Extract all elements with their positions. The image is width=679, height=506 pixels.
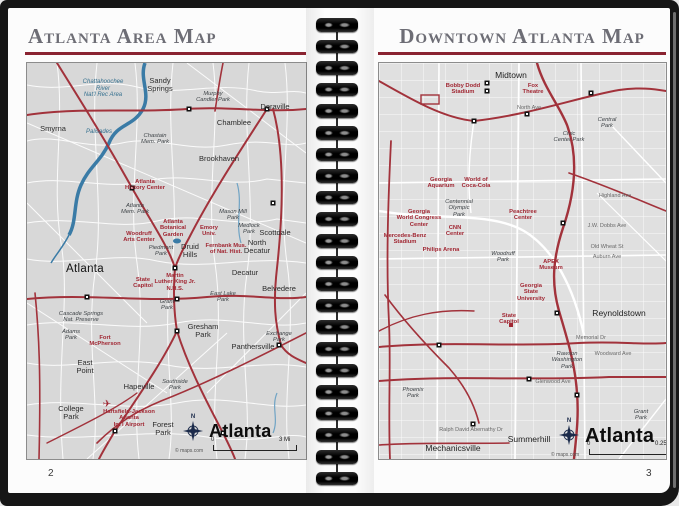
spiral-coil (316, 472, 358, 486)
map-label: Woodruff Arts Center (123, 231, 155, 244)
map-label: North Ave (517, 105, 541, 111)
map-label: Emory Univ. (200, 225, 218, 238)
compass-rose (182, 420, 204, 442)
map-label: Midtown (495, 71, 527, 81)
spiral-binding (314, 12, 360, 492)
map-label: Southside Park (162, 379, 188, 392)
map-label: State Capitol (133, 277, 153, 290)
map-label: Brookhaven (199, 155, 239, 163)
map-label: Murphy Candler Park (196, 91, 230, 104)
right-page-title: Downtown Atlanta Map (378, 24, 666, 49)
map-label: Atlanta (66, 263, 104, 276)
map-label: Forest Park (152, 421, 173, 438)
book-fore-edge (673, 12, 676, 488)
map-label: Georgia Aquarium (427, 177, 454, 190)
map-label: Woodward Ave (595, 351, 632, 357)
map-label: Gresham Park (188, 323, 219, 340)
map-label: Fernbank Mus. of Nat. Hist. (206, 243, 247, 256)
map-label: Sandy Springs (147, 77, 172, 94)
map-label: Central Park (598, 117, 617, 130)
compass-icon: N (181, 415, 205, 447)
map-label: Hartsfield-Jackson Atlanta Int'l Airport (103, 409, 155, 428)
left-page-number: 2 (48, 468, 54, 479)
spiral-coil (316, 450, 358, 464)
map-label: Reynoldstown (592, 309, 645, 319)
spiral-coil (316, 191, 358, 205)
scale-start: 0 (211, 437, 214, 443)
spiral-coil (316, 277, 358, 291)
spiral-coil (316, 320, 358, 334)
left-page-title: Atlanta Area Map (28, 24, 217, 49)
map-label: Bobby Dodd Stadium (446, 83, 480, 96)
map-label: Smyrna (40, 125, 66, 133)
map-label: Chattahoochee River Nat'l Rec Area (83, 79, 124, 99)
brand-wordmark: Atlanta (585, 425, 654, 448)
map-label: Atlanta Mem. Park (121, 203, 149, 216)
map-label: Mercedes-Benz Stadium (384, 233, 427, 246)
right-page-number: 3 (646, 468, 652, 479)
map-label: Fox Theatre (523, 83, 544, 96)
compass-icon: N (557, 419, 581, 451)
map-label: East Lake Park (210, 291, 236, 304)
map-label: CNN Center (446, 225, 464, 238)
map-label: Atlanta History Center (125, 179, 165, 192)
spiral-coil (316, 148, 358, 162)
spiral-coil (316, 407, 358, 421)
spiral-coil (316, 364, 358, 378)
map-label: Grant Park (160, 299, 175, 312)
scale-bar (589, 449, 667, 455)
right-map-logo: N Atlanta 0 0.25 Mi © maps.com (549, 419, 667, 460)
map-label: ✈ (103, 399, 111, 410)
map-label: APEX Museum (539, 259, 563, 272)
map-label: College Park (58, 405, 83, 422)
map-label: Ralph David Abernathy Dr (439, 427, 503, 433)
spiral-coil (316, 169, 358, 183)
map-label: Peachtree Center (509, 209, 537, 222)
map-label: Glenwood Ave (535, 379, 570, 385)
spiral-coil (316, 18, 358, 32)
map-label: Decatur (232, 269, 258, 277)
spiral-coil (316, 83, 358, 97)
map-label: Fort McPherson (89, 335, 120, 348)
map-label: Summerhill (508, 435, 551, 445)
compass-rose (558, 424, 580, 446)
atlanta-area-map: Sandy SpringsChattahoochee River Nat'l R… (26, 62, 307, 460)
map-label: Exchange Park (266, 331, 292, 344)
right-title-rule (378, 52, 666, 55)
spiral-coil (316, 126, 358, 140)
spiral-coil (316, 385, 358, 399)
spiral-coil (316, 104, 358, 118)
map-label: Phoenix Park (403, 387, 424, 400)
map-label: Druid Hills (181, 243, 199, 260)
map-credit: © maps.com (551, 452, 579, 458)
map-label: North Decatur (244, 239, 270, 256)
scale-end: 0.25 Mi (655, 441, 667, 447)
map-label: East Point (76, 359, 93, 376)
brand-wordmark: Atlanta (209, 421, 271, 442)
spiral-coil (316, 299, 358, 313)
map-label: Chastain Mem. Park (141, 133, 169, 146)
map-label: Civic Center Park (554, 131, 585, 144)
map-label: Adams Park (62, 329, 80, 342)
map-credit: © maps.com (175, 448, 203, 454)
spiral-coil (316, 234, 358, 248)
spiral-coil (316, 212, 358, 226)
spiral-coil (316, 428, 358, 442)
map-label: Hapeville (124, 383, 155, 391)
map-label: Martin Luther King Jr. N.H.S. (155, 273, 196, 292)
map-book: Atlanta Area Map (0, 0, 679, 506)
left-title-rule (25, 52, 306, 55)
map-label: Woodruff Park (491, 251, 515, 264)
map-label: Old Wheat St (591, 244, 624, 250)
map-label: Doraville (260, 103, 289, 111)
map-label: Centennial Olympic Park (445, 199, 473, 218)
book-pages: Atlanta Area Map (8, 8, 670, 493)
spiral-coil (316, 342, 358, 356)
scale-end: 3 Mi (279, 437, 290, 443)
map-label: Medlock Park (238, 223, 260, 236)
spiral-coil (316, 61, 358, 75)
downtown-atlanta-map: MidtownBobby Dodd StadiumFox TheatreNort… (378, 62, 667, 460)
map-label: Mechanicsville (425, 444, 480, 454)
map-label: World of Coca-Cola (462, 177, 491, 190)
map-label: Auburn Ave (593, 254, 621, 260)
map-label: State Capitol (499, 313, 519, 326)
map-label: Piedmont Park (149, 245, 174, 258)
map-label: Mason Mill Park (219, 209, 247, 222)
map-label: J.W. Dobbs Ave (588, 223, 627, 229)
right-map-labels: MidtownBobby Dodd StadiumFox TheatreNort… (379, 63, 666, 459)
map-label: Belvedere (262, 285, 296, 293)
map-label: Cascade Springs Nat. Preserve (59, 311, 103, 324)
map-label: Memorial Dr (576, 335, 606, 341)
map-label: Georgia State University (517, 283, 545, 302)
scale-bar (213, 445, 297, 451)
map-label: Georgia World Congress Center (397, 209, 442, 228)
spiral-coil (316, 256, 358, 270)
left-map-logo: N Atlanta 0 3 Mi © maps.com (173, 415, 307, 460)
map-label: Highland Ave (599, 193, 631, 199)
map-label: Palisades (86, 129, 112, 136)
map-label: Panthersville (232, 343, 275, 351)
map-label: Atlanta Botanical Garden (160, 219, 186, 238)
left-map-labels: Sandy SpringsChattahoochee River Nat'l R… (27, 63, 306, 459)
map-label: Scottdale (259, 229, 290, 237)
scale-start: 0 (587, 441, 590, 447)
map-label: Rawson Washington Park (552, 351, 583, 370)
map-label: Philips Arena (423, 247, 460, 253)
spiral-coil (316, 40, 358, 54)
map-label: Chamblee (217, 119, 251, 127)
